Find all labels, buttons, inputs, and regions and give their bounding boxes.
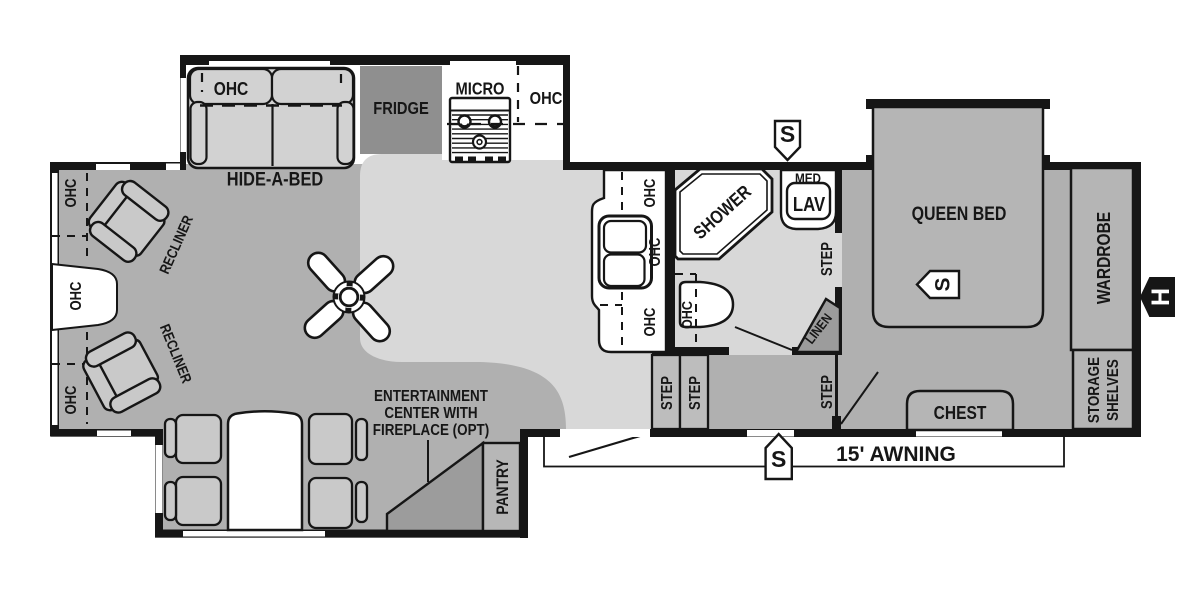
svg-text:OHC: OHC <box>63 386 80 415</box>
svg-text:STEP: STEP <box>659 376 676 410</box>
svg-text:FRIDGE: FRIDGE <box>373 99 429 118</box>
svg-text:OHC: OHC <box>647 238 664 267</box>
svg-text:PANTRY: PANTRY <box>494 459 512 514</box>
svg-text:QUEEN BED: QUEEN BED <box>912 203 1007 225</box>
svg-text:S: S <box>932 277 955 291</box>
svg-text:CENTER WITH: CENTER WITH <box>384 405 477 422</box>
svg-text:STEP: STEP <box>687 376 704 410</box>
svg-text:CHEST: CHEST <box>934 403 987 424</box>
svg-text:S: S <box>771 446 786 472</box>
svg-text:OHC: OHC <box>642 308 659 337</box>
svg-text:MED: MED <box>795 170 821 186</box>
svg-text:S: S <box>780 121 795 147</box>
svg-text:STEP: STEP <box>819 242 836 276</box>
svg-text:MICRO: MICRO <box>456 79 505 98</box>
svg-text:STEP: STEP <box>819 375 836 409</box>
svg-text:ENTERTAINMENT: ENTERTAINMENT <box>374 388 488 405</box>
svg-text:OHC: OHC <box>68 282 85 311</box>
svg-text:OHC: OHC <box>63 179 80 208</box>
svg-text:SHELVES: SHELVES <box>1105 359 1122 421</box>
svg-text:FIREPLACE (OPT): FIREPLACE (OPT) <box>373 422 489 439</box>
svg-text:OHC: OHC <box>214 79 249 100</box>
svg-text:HIDE-A-BED: HIDE-A-BED <box>227 168 323 190</box>
svg-text:H: H <box>1147 288 1175 306</box>
svg-text:WARDROBE: WARDROBE <box>1094 212 1115 304</box>
svg-text:STORAGE: STORAGE <box>1086 357 1103 423</box>
svg-text:OHC: OHC <box>678 301 695 329</box>
svg-text:15' AWNING: 15' AWNING <box>836 443 956 466</box>
svg-text:LAV: LAV <box>793 193 826 216</box>
svg-text:OHC: OHC <box>530 89 563 108</box>
svg-text:OHC: OHC <box>642 179 659 208</box>
